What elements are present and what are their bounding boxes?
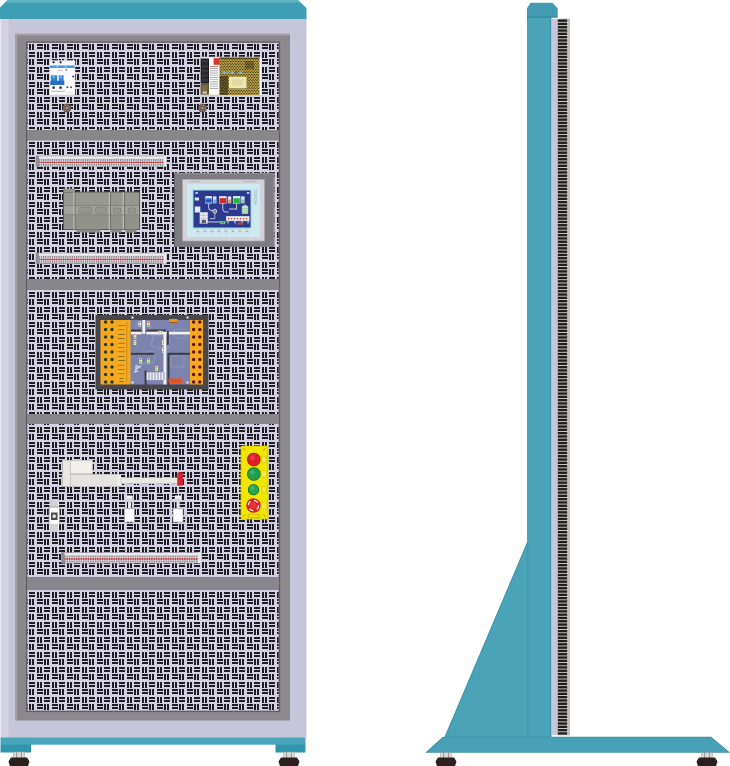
svg-text:TOUCH: TOUCH xyxy=(253,189,258,205)
